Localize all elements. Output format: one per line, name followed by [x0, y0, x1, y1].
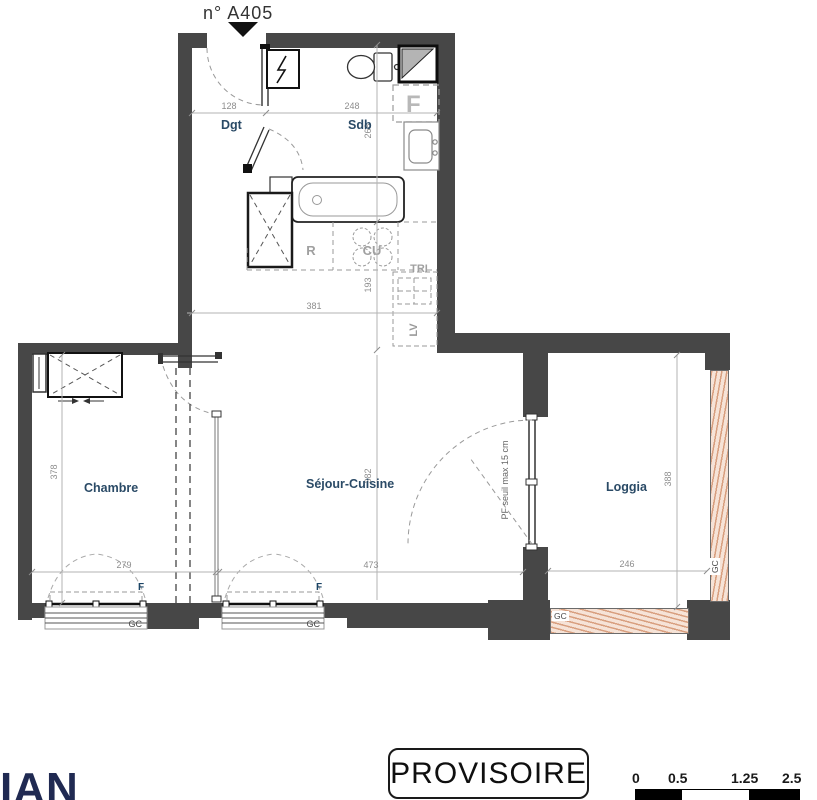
dishwasher-label: LV: [408, 323, 420, 337]
entry-door-symbol: [207, 44, 270, 106]
dim-sejour-width: 473: [363, 560, 378, 570]
plan-linework: R CU TRI LV F: [0, 0, 817, 800]
window1-label: F: [138, 582, 144, 593]
cooktop-label: CU: [363, 243, 382, 258]
dim-sdb-width: 248: [344, 101, 359, 111]
dim-kitchen-width: 381: [306, 301, 321, 311]
window2-guardrail-label: GC: [307, 619, 321, 629]
reserved-box-label: F: [406, 91, 421, 118]
dim-dgt-width: 128: [221, 101, 236, 111]
toilet-symbol: [348, 53, 400, 81]
window1-guardrail-label: GC: [129, 619, 143, 629]
entrance-pointer-icon: [228, 22, 258, 37]
scalebar-tick-05: 0.5: [668, 770, 687, 786]
pf-door-symbol: [408, 414, 537, 550]
dimension-labels: 128 248 268 193 381 378 279 382 473 388 …: [49, 101, 673, 570]
glass-partition-symbol: [212, 411, 221, 602]
room-label-sejour: Séjour-Cuisine: [306, 477, 394, 491]
dim-chambre-width: 279: [116, 560, 131, 570]
dim-chambre-depth: 378: [49, 464, 59, 479]
floorplan-canvas: n° A405 GC GC: [0, 0, 817, 800]
corner-shower-symbol: [399, 46, 437, 82]
fridge-label: R: [306, 243, 316, 258]
sorting-label: TRI: [410, 263, 428, 275]
dim-loggia-depth: 388: [663, 471, 673, 486]
washbasin-symbol: [404, 122, 439, 170]
scalebar-white-segment: [682, 790, 749, 800]
window2-label: F: [316, 582, 322, 593]
scalebar: [635, 789, 800, 800]
window-sejour-symbol: [222, 554, 324, 629]
logo-text: IAN: [0, 764, 79, 800]
technical-closet-symbol: [248, 193, 292, 267]
window-chambre-symbol: [45, 554, 147, 629]
room-label-chambre: Chambre: [84, 481, 138, 495]
scalebar-tick-0: 0: [632, 770, 640, 786]
bathtub-symbol: [292, 177, 404, 222]
scalebar-tick-25: 2.5: [782, 770, 801, 786]
electrical-panel-icon: [267, 50, 299, 88]
room-label-dgt: Dgt: [221, 118, 242, 132]
pf-note: PF seuil max 15 cm: [500, 440, 510, 519]
dim-loggia-width: 246: [619, 559, 634, 569]
room-label-sdb: Sdb: [348, 118, 372, 132]
radiator-symbol: [33, 354, 46, 392]
kitchen-door-symbol: [243, 127, 303, 173]
scalebar-tick-125: 1.25: [731, 770, 758, 786]
provisional-stamp: PROVISOIRE: [388, 748, 589, 799]
wardrobe-symbol: [48, 353, 122, 404]
room-label-loggia: Loggia: [606, 480, 647, 494]
dim-kitchen-depth: 193: [363, 277, 373, 292]
